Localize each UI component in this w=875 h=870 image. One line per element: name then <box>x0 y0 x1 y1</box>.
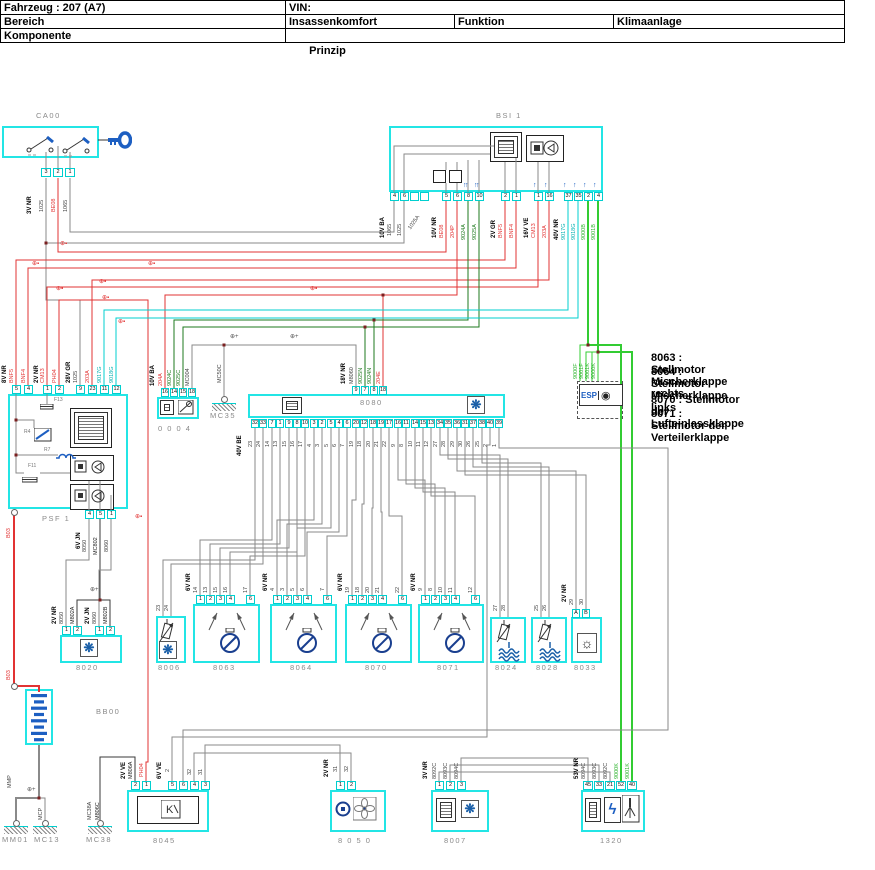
connector-pin: 3 <box>216 595 225 604</box>
wire-label: 18V NR <box>341 363 347 384</box>
wire-label: 3V NR <box>423 761 429 779</box>
connector-pin: 18 <box>188 388 196 397</box>
wire-label: 204P <box>451 225 457 238</box>
key-icon <box>98 131 132 154</box>
wire-label: 40V NR <box>554 219 560 240</box>
connector-pin: 3 <box>368 595 377 604</box>
connector-pin: 6 <box>453 192 462 201</box>
connector-circle-icon <box>13 820 20 827</box>
connector-circle-icon <box>11 683 18 690</box>
diagram-subtitle: Prinzip <box>0 45 655 57</box>
wire-label: 9017G <box>562 223 568 240</box>
connector-pin: 1 <box>435 781 444 790</box>
wire-label: 20 <box>366 587 372 593</box>
wire-label: 1025 <box>40 200 46 212</box>
connector-pin: 33 <box>259 419 267 428</box>
connector-pin: 16 <box>545 192 554 201</box>
wire-label: 9001K <box>626 763 632 779</box>
connector-pin: 15 <box>419 419 427 428</box>
wire-label: 3 <box>316 444 322 447</box>
wire-label: 19 <box>346 587 352 593</box>
wire-label: 29 <box>570 599 576 605</box>
wire-label: 2V JN <box>85 607 91 624</box>
signal-arrow-icon: ↑ <box>593 182 597 189</box>
connector-pin: 8 <box>370 386 378 395</box>
splice-icon: ⊕▪ <box>99 279 106 285</box>
connector-pin: 2 <box>73 626 82 635</box>
wire-label: 16 <box>291 441 297 447</box>
connector-pin: 12 <box>360 419 368 428</box>
wire-label: 2 <box>484 444 490 447</box>
wire-label: 24 <box>257 441 263 447</box>
wire-label: 8060 <box>93 612 99 624</box>
connector-pin: 8 <box>464 192 473 201</box>
wire-label: 6 <box>301 588 307 591</box>
connector-pin: 1 <box>276 419 284 428</box>
wire-label: 8060 <box>105 540 111 552</box>
connector-pin: 4 <box>24 385 33 394</box>
connector-pin: 1 <box>196 595 205 604</box>
wire-label: 18 <box>356 587 362 593</box>
connector-pin: 2 <box>431 595 440 604</box>
wire-label: M8060 <box>350 367 356 384</box>
wire-label: 53V NR <box>574 758 580 779</box>
evap-icon <box>496 642 522 667</box>
wire-label: BNF4 <box>510 224 516 238</box>
connector-pin: 4 <box>303 595 312 604</box>
connector-pin: 2 <box>584 192 593 201</box>
component-label: BB00 <box>96 708 120 716</box>
wire-label: 24 <box>165 605 171 611</box>
connector-pin: 5 <box>442 192 451 201</box>
wire-label: 6V NR <box>411 573 417 591</box>
connector-pin: 14 <box>170 388 178 397</box>
motorM-icon <box>335 801 351 822</box>
connector-pin: 2 <box>501 192 510 201</box>
connector-pin: 40 <box>627 781 637 790</box>
wire-label: 26 <box>543 605 549 611</box>
wire-label: MC50C <box>218 364 224 383</box>
splice-icon: ⊕▪ <box>310 286 317 292</box>
wire-label: MC004 <box>186 368 192 386</box>
wire-label: 2V GR <box>491 220 497 238</box>
connector-pin: 3 <box>293 595 302 604</box>
component-label: MC13 <box>34 836 60 844</box>
connector-pin: 2 <box>106 626 115 635</box>
component-label: 8033 <box>574 664 597 672</box>
connector-pin: 1 <box>336 781 345 790</box>
wire-label: 8092C <box>433 763 439 779</box>
connector-pin: 39 <box>495 419 503 428</box>
signal-arrow-icon: ↑ <box>544 182 548 189</box>
wire-label: 2V VE <box>121 762 127 779</box>
connector-pin: 2 <box>131 781 140 790</box>
wire-label: 203A <box>86 370 92 383</box>
splice-icon: ⊕▪ <box>102 295 109 301</box>
wire-label: 6V NR <box>263 573 269 591</box>
connector-pin: 16 <box>161 388 169 397</box>
legend-8071: 8071 : Stellmotor der Verteilerklappe <box>651 408 729 444</box>
wire-label: 30 <box>580 599 586 605</box>
wire-label: 4 <box>271 588 277 591</box>
wire-label: 3V NR <box>27 196 33 214</box>
wire-label: 1025 <box>398 224 404 236</box>
component-label: 0 0 0 4 <box>158 425 191 433</box>
connector-pin: 3 <box>310 419 318 428</box>
connector-pin: 5 <box>168 781 177 790</box>
wire-label: 203A <box>543 225 549 238</box>
connector-pin: 6 <box>246 595 255 604</box>
wire-label: 4 <box>308 444 314 447</box>
wire-label: 20 <box>367 441 373 447</box>
chip-icon <box>282 397 302 414</box>
connector-pin: 6 <box>471 595 480 604</box>
wire-label: 25 <box>476 441 482 447</box>
connector-pin: 2 <box>283 595 292 604</box>
wire-label: 2V NR <box>324 759 330 777</box>
connector-pin: 1 <box>107 510 116 519</box>
connector-pin: 1 <box>421 595 430 604</box>
wire-label: 21 <box>376 587 382 593</box>
wire-label: 22 <box>383 441 389 447</box>
connector-pin: 1 <box>142 781 151 790</box>
connector-pin: 1 <box>62 626 71 635</box>
signal-arrow-icon: ↑ <box>533 182 537 189</box>
connector-pin: B <box>582 609 590 618</box>
comprK-icon: K <box>161 800 181 824</box>
connector-pin: 18 <box>369 419 377 428</box>
wire-label: 27 <box>494 605 500 611</box>
svg-text:K: K <box>166 804 174 816</box>
ground-junction-icon: ⊕+ <box>90 587 99 593</box>
connector-pin: 38 <box>478 419 486 428</box>
wire-label: 5 <box>325 444 331 447</box>
connector-pin: 33 <box>594 781 604 790</box>
connector-pin: 6 <box>343 419 351 428</box>
wire-label: 8 <box>400 444 406 447</box>
connector-pin: 19 <box>377 419 385 428</box>
pot-icon <box>278 610 330 637</box>
wire-label: 28 <box>442 441 448 447</box>
wire-label: MC802 <box>94 537 100 555</box>
screen-icon <box>178 400 194 420</box>
wire-label: 3 <box>281 588 287 591</box>
connector-pin: 1 <box>95 626 104 635</box>
component-label: PSF 1 <box>42 515 70 523</box>
connector-pin: 3 <box>41 168 51 177</box>
wire-label: 6V VE <box>157 762 163 779</box>
connector-pin: 4 <box>85 510 94 519</box>
pot-icon <box>353 610 405 637</box>
wire-label: 32 <box>345 766 351 772</box>
conn-icon <box>530 139 560 164</box>
wire-label: CM13 <box>532 223 538 238</box>
wire-label: 1025A <box>408 215 422 231</box>
component-label: 8070 <box>365 664 388 672</box>
connector-pin: 1 <box>65 168 75 177</box>
bereich-label: Bereich <box>1 15 286 29</box>
wire-label: 8V NR <box>2 365 8 383</box>
connector-pin: 1 <box>348 595 357 604</box>
ground-icon <box>88 826 112 834</box>
fan-icon: ❋ <box>159 641 177 659</box>
wire-label: B03 <box>7 670 13 680</box>
connector-pin: 8 <box>293 419 301 428</box>
connector-pin: 4 <box>390 192 399 201</box>
splice-icon: ⊕▪ <box>148 261 155 267</box>
evap-icon <box>537 642 563 667</box>
connector-pin: 18 <box>379 386 387 395</box>
wire-label: 7 <box>321 588 327 591</box>
komponente-label: Komponente <box>1 29 286 43</box>
connector-pin: 36 <box>453 419 461 428</box>
connector-pin: 6 <box>400 192 409 201</box>
signal-arrow-icon: ↑ <box>476 182 480 189</box>
fan-icon: ❋ <box>80 639 98 657</box>
connector-pin: 3 <box>201 781 210 790</box>
wire-label: CM13 <box>41 368 47 383</box>
component-label: 1320 <box>600 837 623 845</box>
wire-label: 6V NR <box>186 573 192 591</box>
connector-pin: 5 <box>12 385 21 394</box>
wire-label: R7 <box>44 448 50 453</box>
wire-label: 16 <box>224 587 230 593</box>
connector-pin: 16 <box>394 419 402 428</box>
connector-pin: 52 <box>616 781 626 790</box>
wire-label: M806A <box>129 762 135 779</box>
splice-icon: ⊕▪ <box>135 514 142 520</box>
bereich-value: Insassenkomfort <box>286 15 455 29</box>
komponente-value <box>286 29 845 43</box>
wire-label: 11 <box>449 587 455 593</box>
ground-junction-icon: ⊕+ <box>290 334 299 340</box>
wire-label: 31 <box>199 769 205 775</box>
relay-icon <box>74 459 110 482</box>
ground-icon <box>4 826 28 834</box>
wire-label: 15 <box>283 441 289 447</box>
wire-label: 9000K <box>592 363 598 379</box>
rbox-icon <box>34 428 52 447</box>
wire-label: 12 <box>425 441 431 447</box>
connector-circle-icon <box>11 509 18 516</box>
connector-pin: 4 <box>335 419 343 428</box>
chip-icon <box>160 400 174 415</box>
wire-label: 22 <box>396 587 402 593</box>
connector-pin: 3 <box>457 781 466 790</box>
ground-junction-icon: ⊕+ <box>27 787 36 793</box>
ground-icon <box>212 403 236 411</box>
wire-label: 8 <box>429 588 435 591</box>
plug-icon <box>622 795 640 828</box>
relay-icon <box>74 488 110 511</box>
connector-pin: 20 <box>352 419 360 428</box>
connector-pin: 1 <box>43 385 52 394</box>
wire-label: 2V NR <box>562 584 568 602</box>
connector-pin: 7 <box>268 419 276 428</box>
chip-icon <box>74 412 108 444</box>
bolt-icon: ϟ <box>604 797 621 823</box>
wire-label: MC38A <box>88 802 94 820</box>
switch-icon <box>60 131 94 162</box>
fuse-icon <box>40 397 54 415</box>
wire-label: B03 <box>7 528 13 538</box>
wire-label: 18 <box>358 441 364 447</box>
vehicle-cell: Fahrzeug : 207 (A7) <box>1 1 286 15</box>
connector-pin: 15 <box>179 388 187 397</box>
connector-pin: 11 <box>402 419 410 428</box>
connector-pin: 9 <box>76 385 85 394</box>
wire-label: MMP <box>8 775 14 788</box>
wire-label: 8093C <box>593 763 599 779</box>
bsi-relay2-box <box>449 170 462 183</box>
wire-label: 8093C <box>444 763 450 779</box>
connector-pin: 32 <box>251 419 259 428</box>
wire-label: 9024A <box>462 224 468 240</box>
fan-icon: ❋ <box>467 396 485 414</box>
espi-icon: ESP◉ <box>579 384 623 406</box>
wire-label: 204A <box>159 373 165 386</box>
connector-pin: 1 <box>273 595 282 604</box>
connector-pin: 35 <box>444 419 452 428</box>
wire-label: 23 <box>249 441 255 447</box>
connector-pin: 6 <box>323 595 332 604</box>
wire-label: 204E <box>377 371 383 384</box>
wire-label: 10V BA <box>150 365 156 386</box>
wire-label: 8092C <box>604 763 610 779</box>
connector-pin: 5 <box>96 510 105 519</box>
wire-label: 31 <box>334 766 340 772</box>
wire-label: 29 <box>451 441 457 447</box>
chip-icon <box>494 136 518 158</box>
wire-label: 6 <box>333 444 339 447</box>
connector-pin: 6 <box>179 781 188 790</box>
connector-pin: 2 <box>206 595 215 604</box>
connector-pin: 35 <box>574 192 583 201</box>
connector-pin: 7 <box>361 386 369 395</box>
connector-pin: 9 <box>285 419 293 428</box>
connector-pin: 37 <box>564 192 573 201</box>
wire-label: 7 <box>341 444 347 447</box>
wire-label: PH04 <box>53 369 59 383</box>
wire-label: 10V BA <box>380 217 386 238</box>
connector-pin: 40 <box>486 419 494 428</box>
wire-label: 6V NR <box>338 573 344 591</box>
component-label: 8 0 5 0 <box>338 837 371 845</box>
wire-label: 26 <box>467 441 473 447</box>
signal-arrow-icon: ↑ <box>583 182 587 189</box>
connector-pin: 23 <box>88 385 97 394</box>
component-label: 8063 <box>213 664 236 672</box>
signal-arrow-icon: ↑ <box>563 182 567 189</box>
component-label: CA00 <box>36 112 61 120</box>
wire-label: 12 <box>469 587 475 593</box>
connector-pin: 45 <box>583 781 593 790</box>
connector-pin: 4 <box>226 595 235 604</box>
wire-label: 9001B <box>592 224 598 240</box>
wire-label: 27 <box>434 441 440 447</box>
connector-circle-icon <box>42 820 49 827</box>
wire-label: BE08 <box>440 225 446 238</box>
wire-label: 30 <box>459 441 465 447</box>
connector-pin: 34 <box>436 419 444 428</box>
pot-icon <box>201 610 253 637</box>
wire-label: 9018G <box>572 223 578 240</box>
connector-pin: 2 <box>55 385 64 394</box>
wire-label: 1 <box>493 444 499 447</box>
component-label: MC35 <box>210 412 236 420</box>
connector-pin: 21 <box>605 781 615 790</box>
connector-pin: 14 <box>411 419 419 428</box>
wire-label: 21 <box>375 441 381 447</box>
fuse-icon <box>22 470 38 488</box>
connector-pin: 1 <box>534 192 543 201</box>
connector-pin: 31 <box>461 419 469 428</box>
wiring-diagram-page: Fahrzeug : 207 (A7) VIN: Bereich Insasse… <box>0 0 875 870</box>
wire-label: 15 <box>214 587 220 593</box>
wire-label: 19 <box>350 441 356 447</box>
connector-pin: 2 <box>318 419 326 428</box>
splice-icon: ⊕▪ <box>118 319 125 325</box>
wire-label: 9018G <box>110 366 116 383</box>
component-label: 8045 <box>153 837 176 845</box>
wire-label: 28V GR <box>66 362 72 383</box>
connector-pin: 2 <box>53 168 63 177</box>
signal-arrow-icon: ↑ <box>573 182 577 189</box>
wire-label: 10V NR <box>432 217 438 238</box>
wire-label: 1025 <box>74 371 80 383</box>
connector-pin <box>410 192 419 201</box>
wire-label: 9000B <box>582 224 588 240</box>
wire-label: 23 <box>157 605 163 611</box>
wire-label: 32 <box>188 769 194 775</box>
wire-label: 25 <box>535 605 541 611</box>
signal-arrow-icon: ↑ <box>465 182 469 189</box>
splice-icon: ⊕▪ <box>56 286 63 292</box>
wire-label: 9017G <box>98 366 104 383</box>
wire-label: 9024N <box>368 368 374 384</box>
wire-label: 8094C <box>582 763 588 779</box>
connector-pin: 4 <box>451 595 460 604</box>
connector-pin: 17 <box>385 419 393 428</box>
wire-label: 13 <box>274 441 280 447</box>
wire-label: 14 <box>266 441 272 447</box>
connector-pin: 2 <box>347 781 356 790</box>
chip-icon <box>585 798 601 822</box>
wire-label: 16V VE <box>524 218 530 238</box>
funktion-value: Klimaanlage <box>614 15 845 29</box>
wire-label: 17 <box>299 441 305 447</box>
chip-icon <box>436 798 456 822</box>
fan-icon: ❋ <box>461 800 479 818</box>
vin-cell: VIN: <box>286 1 845 15</box>
connector-pin: 12 <box>112 385 121 394</box>
connector-pin: 4 <box>378 595 387 604</box>
wire-label: 8050 <box>83 540 89 552</box>
component-label: 8080 <box>360 399 383 407</box>
sun-icon: ☼ <box>577 633 597 653</box>
wire-label: BNF5 <box>499 224 505 238</box>
wire-label: BNF4 <box>22 369 28 383</box>
component-label: 8007 <box>444 837 467 845</box>
wire-label: 13 <box>204 587 210 593</box>
wire-label: 17 <box>244 587 250 593</box>
wire-label: 9025C <box>177 370 183 386</box>
wire-label: R4 <box>24 430 30 435</box>
wire-label: 28 <box>502 605 508 611</box>
splice-icon: ⊕▪ <box>60 241 67 247</box>
wire-label: M806C <box>96 802 102 820</box>
wire-label: M802A <box>71 607 77 624</box>
